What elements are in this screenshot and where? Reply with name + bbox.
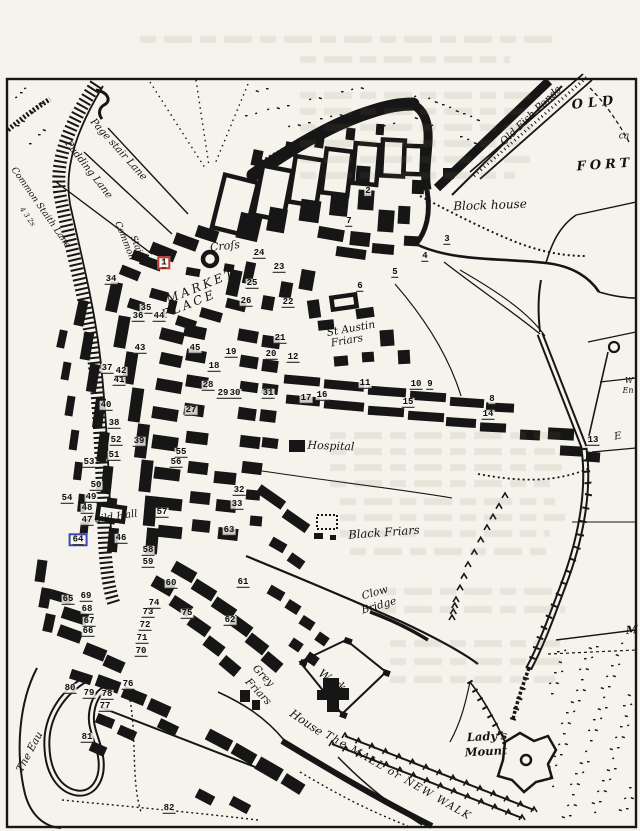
map-label-mount: Mount <box>465 745 508 759</box>
map-number-76: 76 <box>122 680 135 690</box>
map-number-75: 75 <box>181 609 194 619</box>
map-number-58: 58 <box>142 546 155 556</box>
map-number-69: 69 <box>80 592 93 602</box>
map-number-17: 17 <box>300 394 313 404</box>
bleedthrough-smudge <box>330 480 550 487</box>
map-label-edge-e: E <box>614 431 623 442</box>
map-number-79: 79 <box>83 689 96 699</box>
bleedthrough-smudge <box>300 124 535 131</box>
map-number-50: 50 <box>90 481 103 491</box>
bleedthrough-smudge <box>300 140 520 147</box>
map-number-text: 64 <box>73 534 84 545</box>
bleedthrough-smudge <box>350 548 550 555</box>
map-number-9: 9 <box>426 380 433 390</box>
map-number-22: 22 <box>282 298 295 308</box>
map-number-7: 7 <box>345 217 352 227</box>
map-number-13: 13 <box>587 436 600 446</box>
map-number-43: 43 <box>134 344 147 354</box>
map-number-6: 6 <box>356 282 363 292</box>
map-number-26: 26 <box>240 297 253 307</box>
map-number-21: 21 <box>274 334 287 344</box>
map-number-78: 78 <box>101 690 114 700</box>
map-number-70: 70 <box>135 647 148 657</box>
map-number-36: 36 <box>132 312 145 322</box>
map-label-blockhouse: Block house <box>453 198 527 213</box>
map-number-4: 4 <box>421 252 428 262</box>
map-number-77: 77 <box>99 702 112 712</box>
map-number-54: 54 <box>61 494 74 504</box>
map-number-53: 53 <box>83 458 96 468</box>
map-number-51: 51 <box>108 451 121 461</box>
map-number-72: 72 <box>139 621 152 631</box>
bleedthrough-smudge <box>330 448 555 455</box>
map-number-57: 57 <box>156 508 169 518</box>
map-number-62: 62 <box>224 616 237 626</box>
map-number-80: 80 <box>64 684 77 694</box>
map-number-29: 29 <box>217 389 230 399</box>
bleedthrough-smudge <box>390 640 560 647</box>
map-label-ladys: Lady's <box>467 730 508 744</box>
map-number-48: 48 <box>81 504 94 514</box>
bleedthrough-smudge <box>380 606 565 613</box>
map-number-12: 12 <box>287 353 300 363</box>
map-number-19: 19 <box>225 348 238 358</box>
bleedthrough-smudge <box>330 464 565 471</box>
map-number-68: 68 <box>81 605 94 615</box>
bleedthrough-smudge <box>340 498 555 505</box>
map-number-65: 65 <box>62 595 75 605</box>
map-label-ca-fragment: ca <box>619 133 629 142</box>
map-number-37: 37 <box>101 364 114 374</box>
map-number-39: 39 <box>133 437 146 447</box>
map-number-66: 66 <box>82 627 95 637</box>
map-number-15: 15 <box>402 398 415 408</box>
map-number-60: 60 <box>165 579 178 589</box>
map-number-73: 73 <box>142 608 155 618</box>
map-number-34: 34 <box>105 275 118 285</box>
map-number-63: 63 <box>223 526 236 536</box>
map-number-41: 41 <box>113 376 126 386</box>
bleedthrough-smudge <box>300 56 510 63</box>
bleedthrough-smudge <box>300 172 515 179</box>
map-number-56: 56 <box>170 458 183 468</box>
bleedthrough-smudge <box>380 588 560 595</box>
map-number-5: 5 <box>391 268 398 278</box>
bleedthrough-smudge <box>390 676 555 683</box>
map-number-20: 20 <box>265 350 278 360</box>
bleedthrough-smudge <box>390 658 565 665</box>
map-number-3: 3 <box>443 235 450 245</box>
map-number-32: 32 <box>233 486 246 496</box>
map-number-33: 33 <box>231 500 244 510</box>
map-canvas: Page stair LanePudding LaneCommon Staith… <box>0 0 640 831</box>
map-number-30: 30 <box>229 389 242 399</box>
map-number-59: 59 <box>142 558 155 568</box>
map-number-71: 71 <box>136 634 149 644</box>
map-number-74: 74 <box>148 599 161 609</box>
map-number-40: 40 <box>100 401 113 411</box>
map-label-edge-en: En <box>623 387 634 395</box>
map-number-23: 23 <box>273 263 286 273</box>
map-number-28: 28 <box>202 381 215 391</box>
map-number-8: 8 <box>488 395 495 405</box>
map-number-46: 46 <box>115 534 128 544</box>
map-label-hospital: Hospital <box>307 440 354 453</box>
map-number-10: 10 <box>410 380 423 390</box>
bleedthrough-smudge <box>300 108 525 115</box>
bleedthrough-smudge <box>140 36 560 43</box>
map-number-18: 18 <box>208 362 221 372</box>
map-number-52: 52 <box>110 436 123 446</box>
map-number-49: 49 <box>85 493 98 503</box>
map-number-text: 1 <box>161 257 166 268</box>
map-number-81: 81 <box>81 733 94 743</box>
bleedthrough-smudge <box>300 92 530 99</box>
map-label-edge-m: M <box>625 624 638 636</box>
map-number-42: 42 <box>115 367 128 377</box>
map-number-25: 25 <box>246 279 259 289</box>
map-number-61: 61 <box>237 578 250 588</box>
map-number-11: 11 <box>359 379 372 389</box>
map-number-67: 67 <box>83 617 96 627</box>
map-number-27: 27 <box>185 406 198 416</box>
map-number-1: 1 <box>157 256 170 269</box>
map-number-45: 45 <box>189 344 202 354</box>
map-number-47: 47 <box>81 516 94 526</box>
map-number-16: 16 <box>316 391 329 401</box>
map-number-14: 14 <box>482 410 495 420</box>
bleedthrough-smudge <box>330 432 560 439</box>
map-number-82: 82 <box>163 804 176 814</box>
map-label-edge-w: W <box>625 377 633 385</box>
map-number-2: 2 <box>364 187 371 197</box>
bleedthrough-smudge <box>340 514 565 521</box>
bleedthrough-smudge <box>300 156 530 163</box>
map-label-fort: FORT <box>576 157 634 174</box>
map-number-44: 44 <box>153 312 166 322</box>
map-number-24: 24 <box>253 249 266 259</box>
map-number-64: 64 <box>69 533 88 546</box>
map-number-38: 38 <box>108 419 121 429</box>
map-number-31: 31 <box>262 389 275 399</box>
map-label-cross: Croſs <box>209 239 240 253</box>
